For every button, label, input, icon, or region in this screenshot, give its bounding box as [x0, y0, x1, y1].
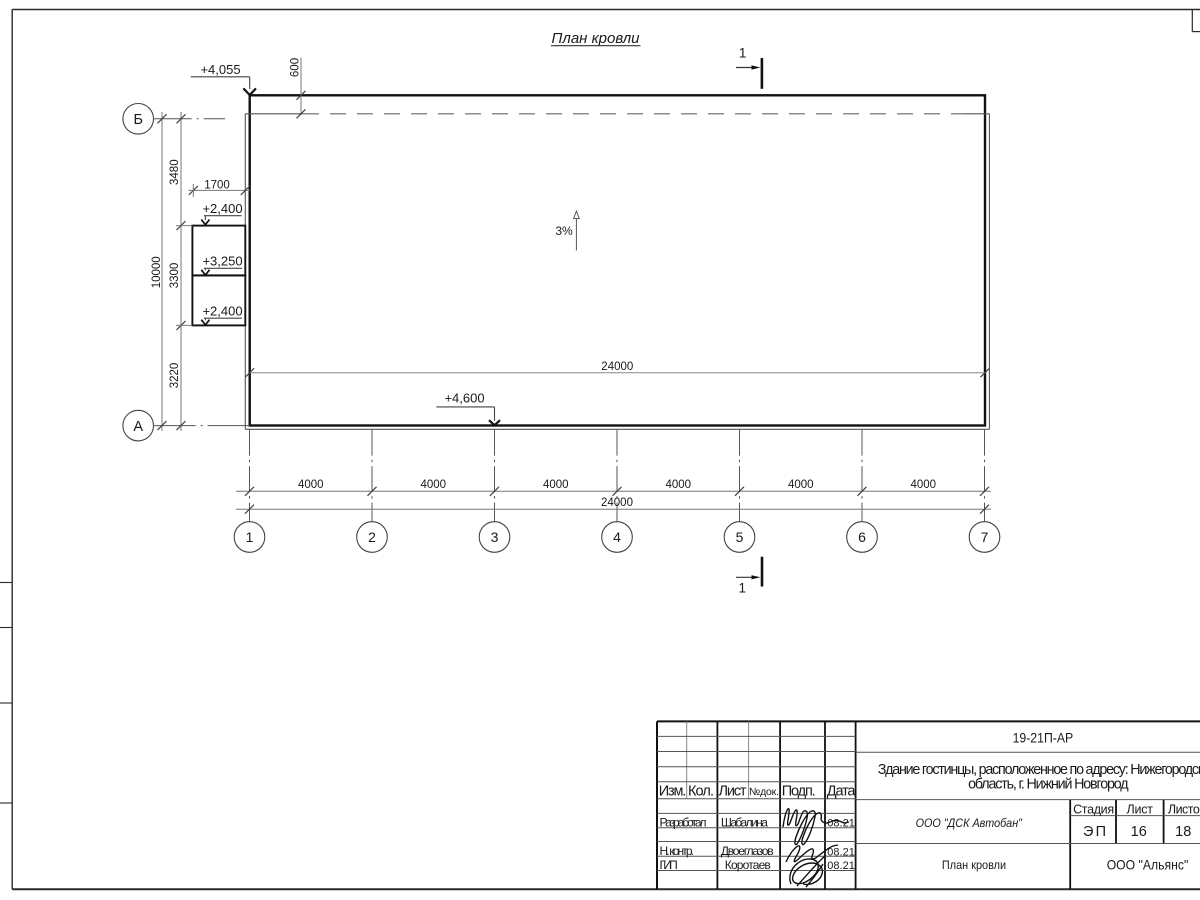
svg-text:Здание гостинцы, расположенное: Здание гостинцы, расположенное по адресу… [878, 762, 1200, 778]
svg-text:Лист: Лист [719, 783, 747, 799]
svg-text:Шабалина: Шабалина [721, 815, 768, 829]
svg-text:ООО "Альянс": ООО "Альянс" [1107, 857, 1189, 873]
svg-text:24000: 24000 [601, 361, 633, 373]
svg-text:+3,250: +3,250 [202, 254, 242, 269]
svg-text:4: 4 [613, 529, 621, 545]
svg-text:№док.: №док. [749, 786, 779, 798]
svg-text:Стадия: Стадия [1073, 802, 1114, 816]
svg-text:Листов: Листов [1168, 802, 1200, 816]
svg-text:План кровли: План кровли [942, 858, 1006, 872]
svg-text:19-21П-АР: 19-21П-АР [1013, 730, 1074, 746]
svg-text:А: А [133, 419, 143, 435]
svg-text:Коротаев: Коротаев [725, 858, 771, 872]
svg-text:6: 6 [858, 529, 866, 545]
svg-text:+4,055: +4,055 [200, 62, 240, 77]
svg-text:08.21: 08.21 [827, 818, 855, 830]
svg-text:3300: 3300 [169, 263, 181, 289]
svg-text:600: 600 [290, 58, 302, 77]
svg-text:18: 18 [1175, 824, 1191, 840]
svg-text:2: 2 [368, 529, 376, 545]
svg-text:Изм.: Изм. [659, 783, 687, 799]
svg-text:3: 3 [491, 529, 499, 545]
svg-text:08.21: 08.21 [827, 860, 855, 872]
svg-text:16: 16 [1131, 824, 1147, 840]
svg-text:Лист: Лист [1127, 802, 1154, 816]
svg-text:4000: 4000 [788, 479, 814, 491]
svg-text:1: 1 [739, 581, 747, 596]
svg-text:1700: 1700 [204, 179, 230, 191]
svg-text:4000: 4000 [666, 479, 692, 491]
svg-text:+2,400: +2,400 [202, 201, 242, 216]
svg-text:24000: 24000 [601, 497, 633, 509]
svg-text:4000: 4000 [543, 479, 569, 491]
svg-text:Подп.: Подп. [782, 783, 816, 799]
svg-text:область, г. Нижний Новгород: область, г. Нижний Новгород [968, 777, 1129, 793]
svg-text:ООО "ДСК Автобан": ООО "ДСК Автобан" [916, 816, 1023, 830]
svg-text:Н. контр.: Н. контр. [660, 844, 695, 858]
svg-text:Кол.: Кол. [688, 783, 714, 799]
svg-text:4000: 4000 [421, 479, 447, 491]
svg-text:Дата: Дата [827, 783, 857, 799]
svg-text:+4,600: +4,600 [444, 390, 484, 405]
svg-text:10000: 10000 [151, 256, 163, 288]
svg-text:Разработал: Разработал [660, 815, 707, 829]
svg-text:1: 1 [739, 46, 747, 61]
svg-text:ГИП: ГИП [660, 858, 678, 872]
svg-text:08.21: 08.21 [827, 847, 855, 859]
svg-text:+2,400: +2,400 [202, 304, 242, 319]
svg-text:Б: Б [133, 112, 143, 128]
svg-text:3480: 3480 [169, 159, 181, 185]
svg-text:3220: 3220 [169, 363, 181, 389]
svg-text:3%: 3% [555, 224, 573, 238]
svg-text:5: 5 [736, 529, 744, 545]
svg-text:Двоеглазов: Двоеглазов [721, 844, 774, 858]
svg-text:7: 7 [981, 529, 989, 545]
svg-text:4000: 4000 [911, 479, 937, 491]
svg-text:4000: 4000 [298, 479, 324, 491]
svg-text:1: 1 [246, 529, 254, 545]
svg-text:План кровли: План кровли [552, 30, 641, 47]
